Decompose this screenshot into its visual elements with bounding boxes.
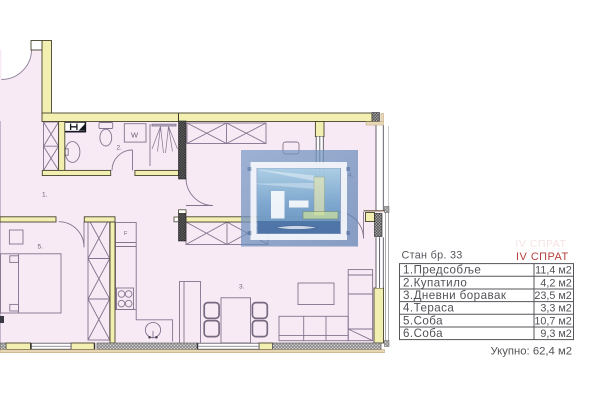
svg-text:11,4 м2: 11,4 м2	[535, 265, 572, 277]
svg-text:2.Купатило: 2.Купатило	[403, 276, 467, 289]
svg-text:IV СПРАТ: IV СПРАТ	[516, 251, 569, 263]
svg-text:4,2 м2: 4,2 м2	[540, 277, 571, 289]
svg-text:Укупно: 62,4 м2: Укупно: 62,4 м2	[491, 346, 572, 358]
svg-text:4.Тераса: 4.Тераса	[403, 302, 454, 315]
svg-text:5.: 5.	[38, 244, 44, 251]
svg-text:3.: 3.	[239, 284, 245, 291]
svg-text:9,3 м2: 9,3 м2	[540, 328, 571, 340]
svg-text:5.Соба: 5.Соба	[403, 314, 443, 327]
svg-text:W: W	[131, 131, 139, 140]
svg-text:1.Предсобље: 1.Предсобље	[403, 264, 481, 277]
svg-text:IV СПРАТ: IV СПРАТ	[516, 238, 567, 250]
svg-text:6.Соба: 6.Соба	[403, 327, 443, 340]
svg-text:1.: 1.	[42, 192, 48, 199]
svg-text:10,7 м2: 10,7 м2	[534, 315, 571, 327]
svg-text:3.Дневни боравак: 3.Дневни боравак	[403, 289, 507, 302]
svg-text:2.: 2.	[117, 145, 123, 152]
svg-text:Стан бр. 33: Стан бр. 33	[402, 250, 463, 262]
svg-text:3,3 м2: 3,3 м2	[540, 303, 571, 315]
svg-text:23,5 м2: 23,5 м2	[534, 290, 571, 302]
